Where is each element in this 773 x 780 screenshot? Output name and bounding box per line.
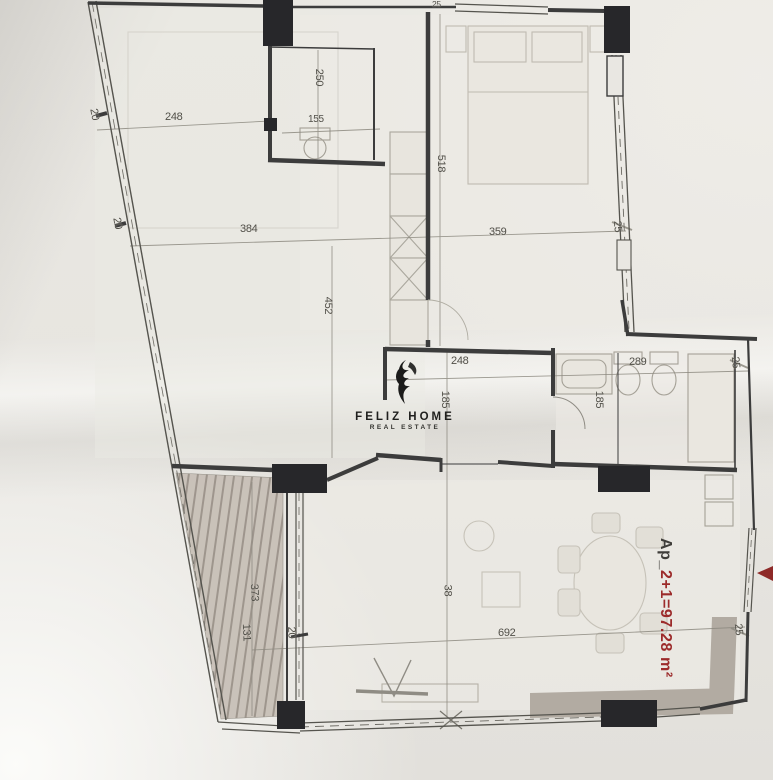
- apartment-id-prefix: Ap_: [657, 538, 674, 570]
- dim-top-wall-tick: 25: [432, 0, 441, 9]
- dim-living-top-width: 248: [165, 112, 182, 123]
- dim-living-height: 452: [322, 297, 333, 314]
- dim-right-wall-tick-lower: 25: [732, 623, 744, 636]
- dim-balcony-length: 373: [248, 584, 260, 602]
- dim-salon-depth: 38: [441, 585, 452, 597]
- dim-left-wall-lower-tick: 20: [110, 217, 123, 231]
- watermark-logo: FELIZ HOME REAL ESTATE: [338, 360, 472, 431]
- dim-closet-depth: 250: [313, 69, 324, 86]
- dim-closet-width: 155: [308, 115, 324, 125]
- logo-tagline-text: REAL ESTATE: [338, 424, 472, 431]
- dim-living-width: 384: [240, 224, 257, 235]
- dim-bedroom-wall-tick: 25: [611, 220, 623, 233]
- apartment-area-label: Ap_2+1=97.28 m²: [656, 538, 674, 678]
- dim-bedroom-height: 518: [435, 155, 446, 172]
- apartment-area-value: 2+1=97.28 m²: [657, 570, 674, 678]
- dim-bedroom-width: 359: [489, 227, 506, 238]
- dim-left-wall-upper-tick: 20: [87, 108, 100, 122]
- dim-salon-width: 692: [498, 628, 515, 639]
- wardrobe: [390, 132, 428, 345]
- balcony-hatch: [176, 473, 283, 719]
- dim-bath-width: 289: [629, 357, 646, 368]
- bed: [446, 26, 610, 184]
- feliz-home-logo-icon: [390, 360, 420, 404]
- dim-right-wall-tick-upper: 25: [729, 356, 741, 369]
- red-arrow: [757, 566, 773, 581]
- logo-brand-text: FELIZ HOME: [338, 411, 472, 423]
- dim-balcony-door-tick: 20: [285, 626, 296, 638]
- dim-balcony-width: 131: [240, 624, 252, 642]
- floorplan-photo: 25 20 248 250 155 518 384 359 25 452 20 …: [0, 0, 773, 780]
- dim-bath-depth: 185: [593, 391, 604, 408]
